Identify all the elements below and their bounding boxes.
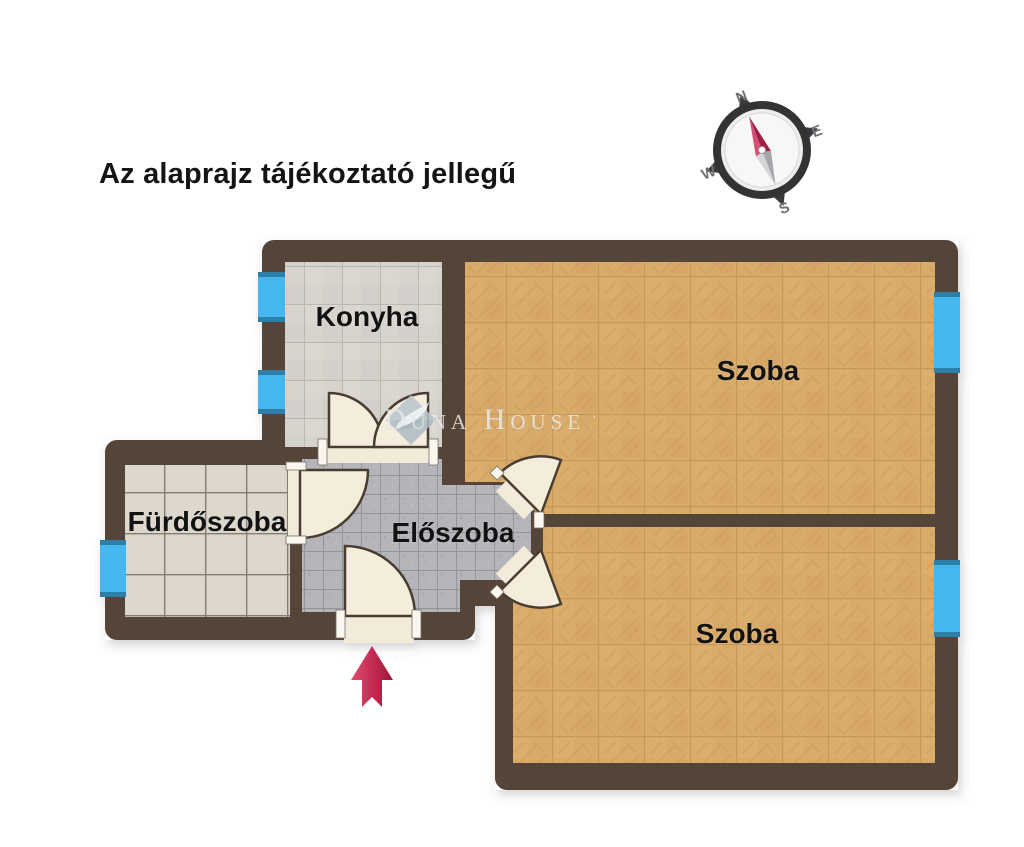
room-label-szoba-top: Szoba — [717, 355, 799, 387]
compass-letter-s: S — [777, 199, 792, 218]
room-label-szoba-bottom: Szoba — [696, 618, 778, 650]
compass-letter-n: N — [734, 87, 750, 107]
floorplan-page: Az alaprajz tájékoztató jellegű Konyha S… — [0, 0, 1024, 847]
window-konyha-2 — [258, 370, 285, 414]
room-label-eloszoba: Előszoba — [392, 517, 515, 549]
disclaimer-title: Az alaprajz tájékoztató jellegű — [99, 158, 516, 191]
window-furdoszoba — [100, 540, 126, 597]
window-konyha-1 — [258, 272, 285, 322]
compass-icon: N E S W — [695, 78, 835, 228]
room-furdoszoba-floor — [125, 465, 290, 617]
window-szoba-bottom — [934, 560, 960, 637]
entrance-arrow-icon — [345, 640, 401, 715]
floorplan-drawing — [0, 0, 1024, 847]
room-label-furdoszoba: Fürdőszoba — [128, 506, 287, 538]
window-szoba-top — [934, 292, 960, 373]
compass-letter-e: E — [809, 122, 824, 141]
room-label-konyha: Konyha — [316, 301, 419, 333]
